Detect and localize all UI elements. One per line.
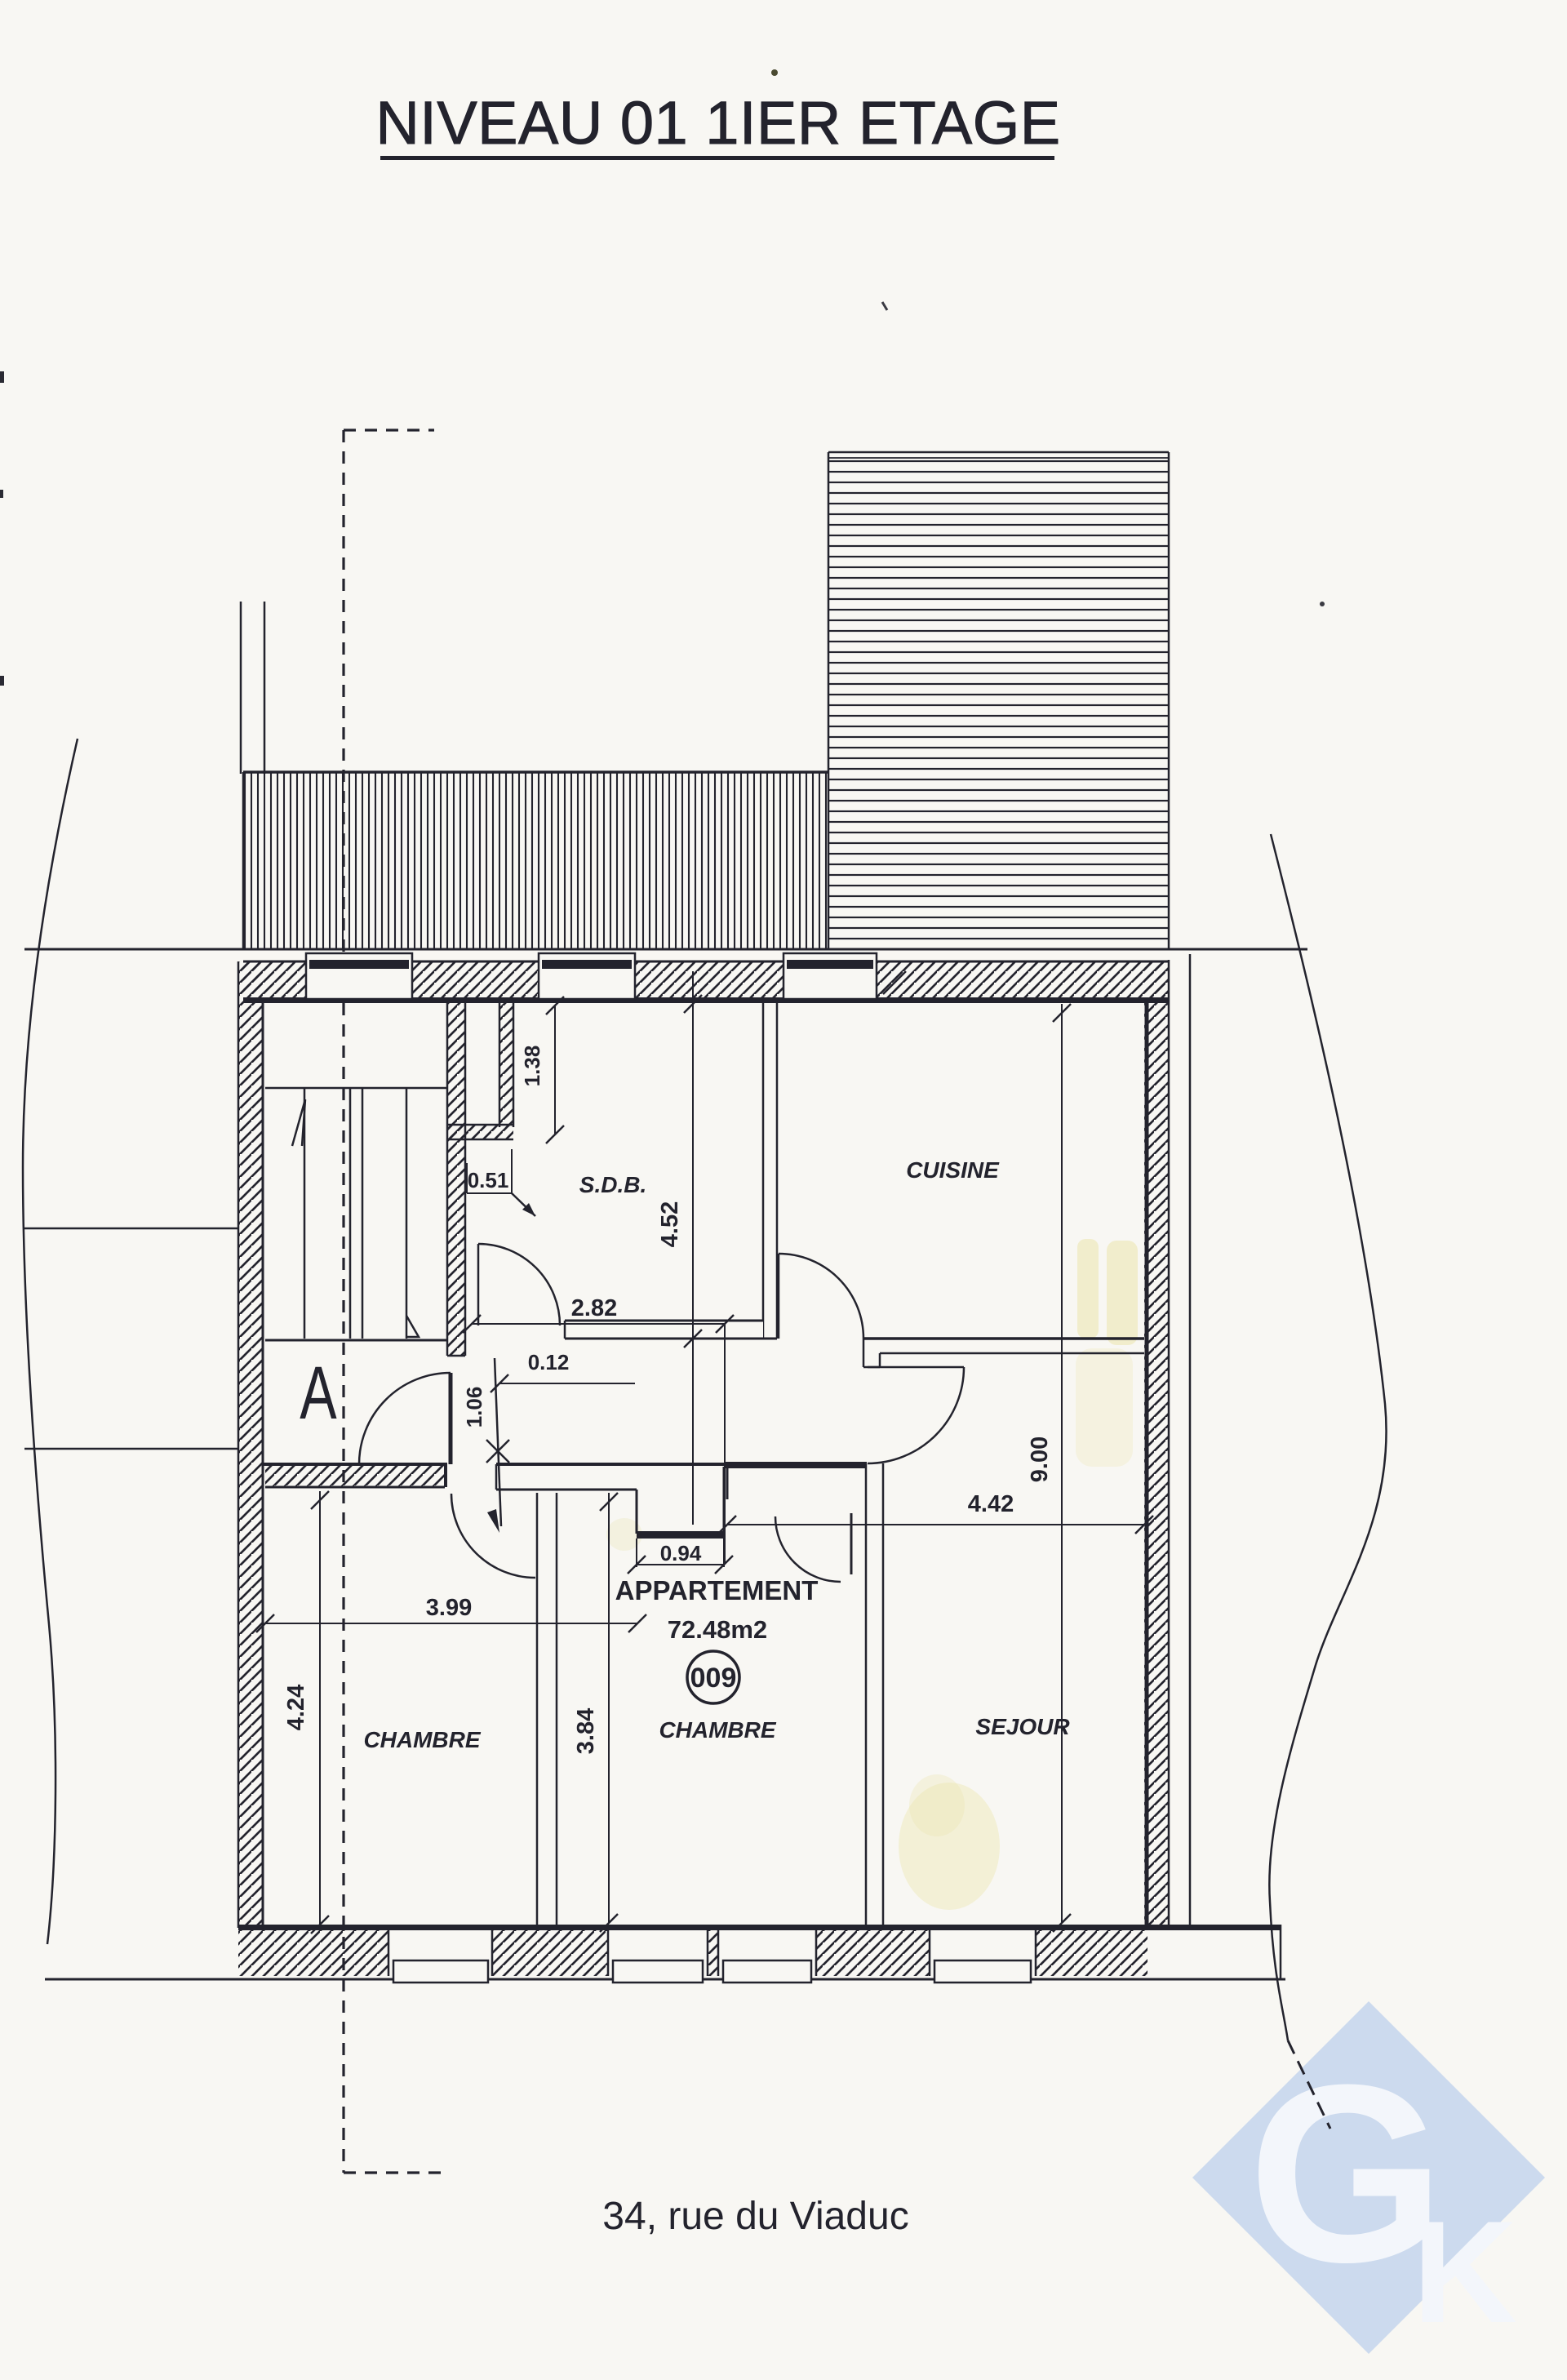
svg-text:CHAMBRE: CHAMBRE — [363, 1727, 481, 1752]
svg-text:0.51: 0.51 — [468, 1168, 509, 1192]
svg-text:4.52: 4.52 — [657, 1201, 683, 1247]
svg-text:34, rue du Viaduc: 34, rue du Viaduc — [602, 2195, 908, 2238]
svg-text:4.42: 4.42 — [968, 1491, 1014, 1517]
svg-text:4.24: 4.24 — [283, 1685, 309, 1730]
svg-text:APPARTEMENT: APPARTEMENT — [615, 1575, 819, 1605]
svg-text:CUISINE: CUISINE — [906, 1157, 1000, 1183]
svg-text:0.94: 0.94 — [660, 1541, 702, 1565]
svg-text:SEJOUR: SEJOUR — [975, 1714, 1070, 1739]
svg-text:0.12: 0.12 — [528, 1350, 570, 1374]
svg-text:3.84: 3.84 — [573, 1708, 599, 1754]
svg-text:9.00: 9.00 — [1027, 1436, 1053, 1482]
svg-text:3.99: 3.99 — [426, 1595, 472, 1621]
svg-text:S.D.B.: S.D.B. — [579, 1172, 646, 1197]
svg-text:2.82: 2.82 — [571, 1295, 617, 1321]
svg-text:A: A — [300, 1352, 336, 1435]
svg-text:72.48m2: 72.48m2 — [668, 1615, 767, 1644]
svg-text:1.06: 1.06 — [462, 1387, 486, 1428]
svg-text:009: 009 — [690, 1663, 737, 1694]
svg-text:K: K — [1413, 2191, 1518, 2353]
svg-text:CHAMBRE: CHAMBRE — [659, 1717, 776, 1743]
svg-text:NIVEAU 01 1IER ETAGE: NIVEAU 01 1IER ETAGE — [375, 89, 1060, 157]
svg-text:1.38: 1.38 — [520, 1046, 544, 1087]
